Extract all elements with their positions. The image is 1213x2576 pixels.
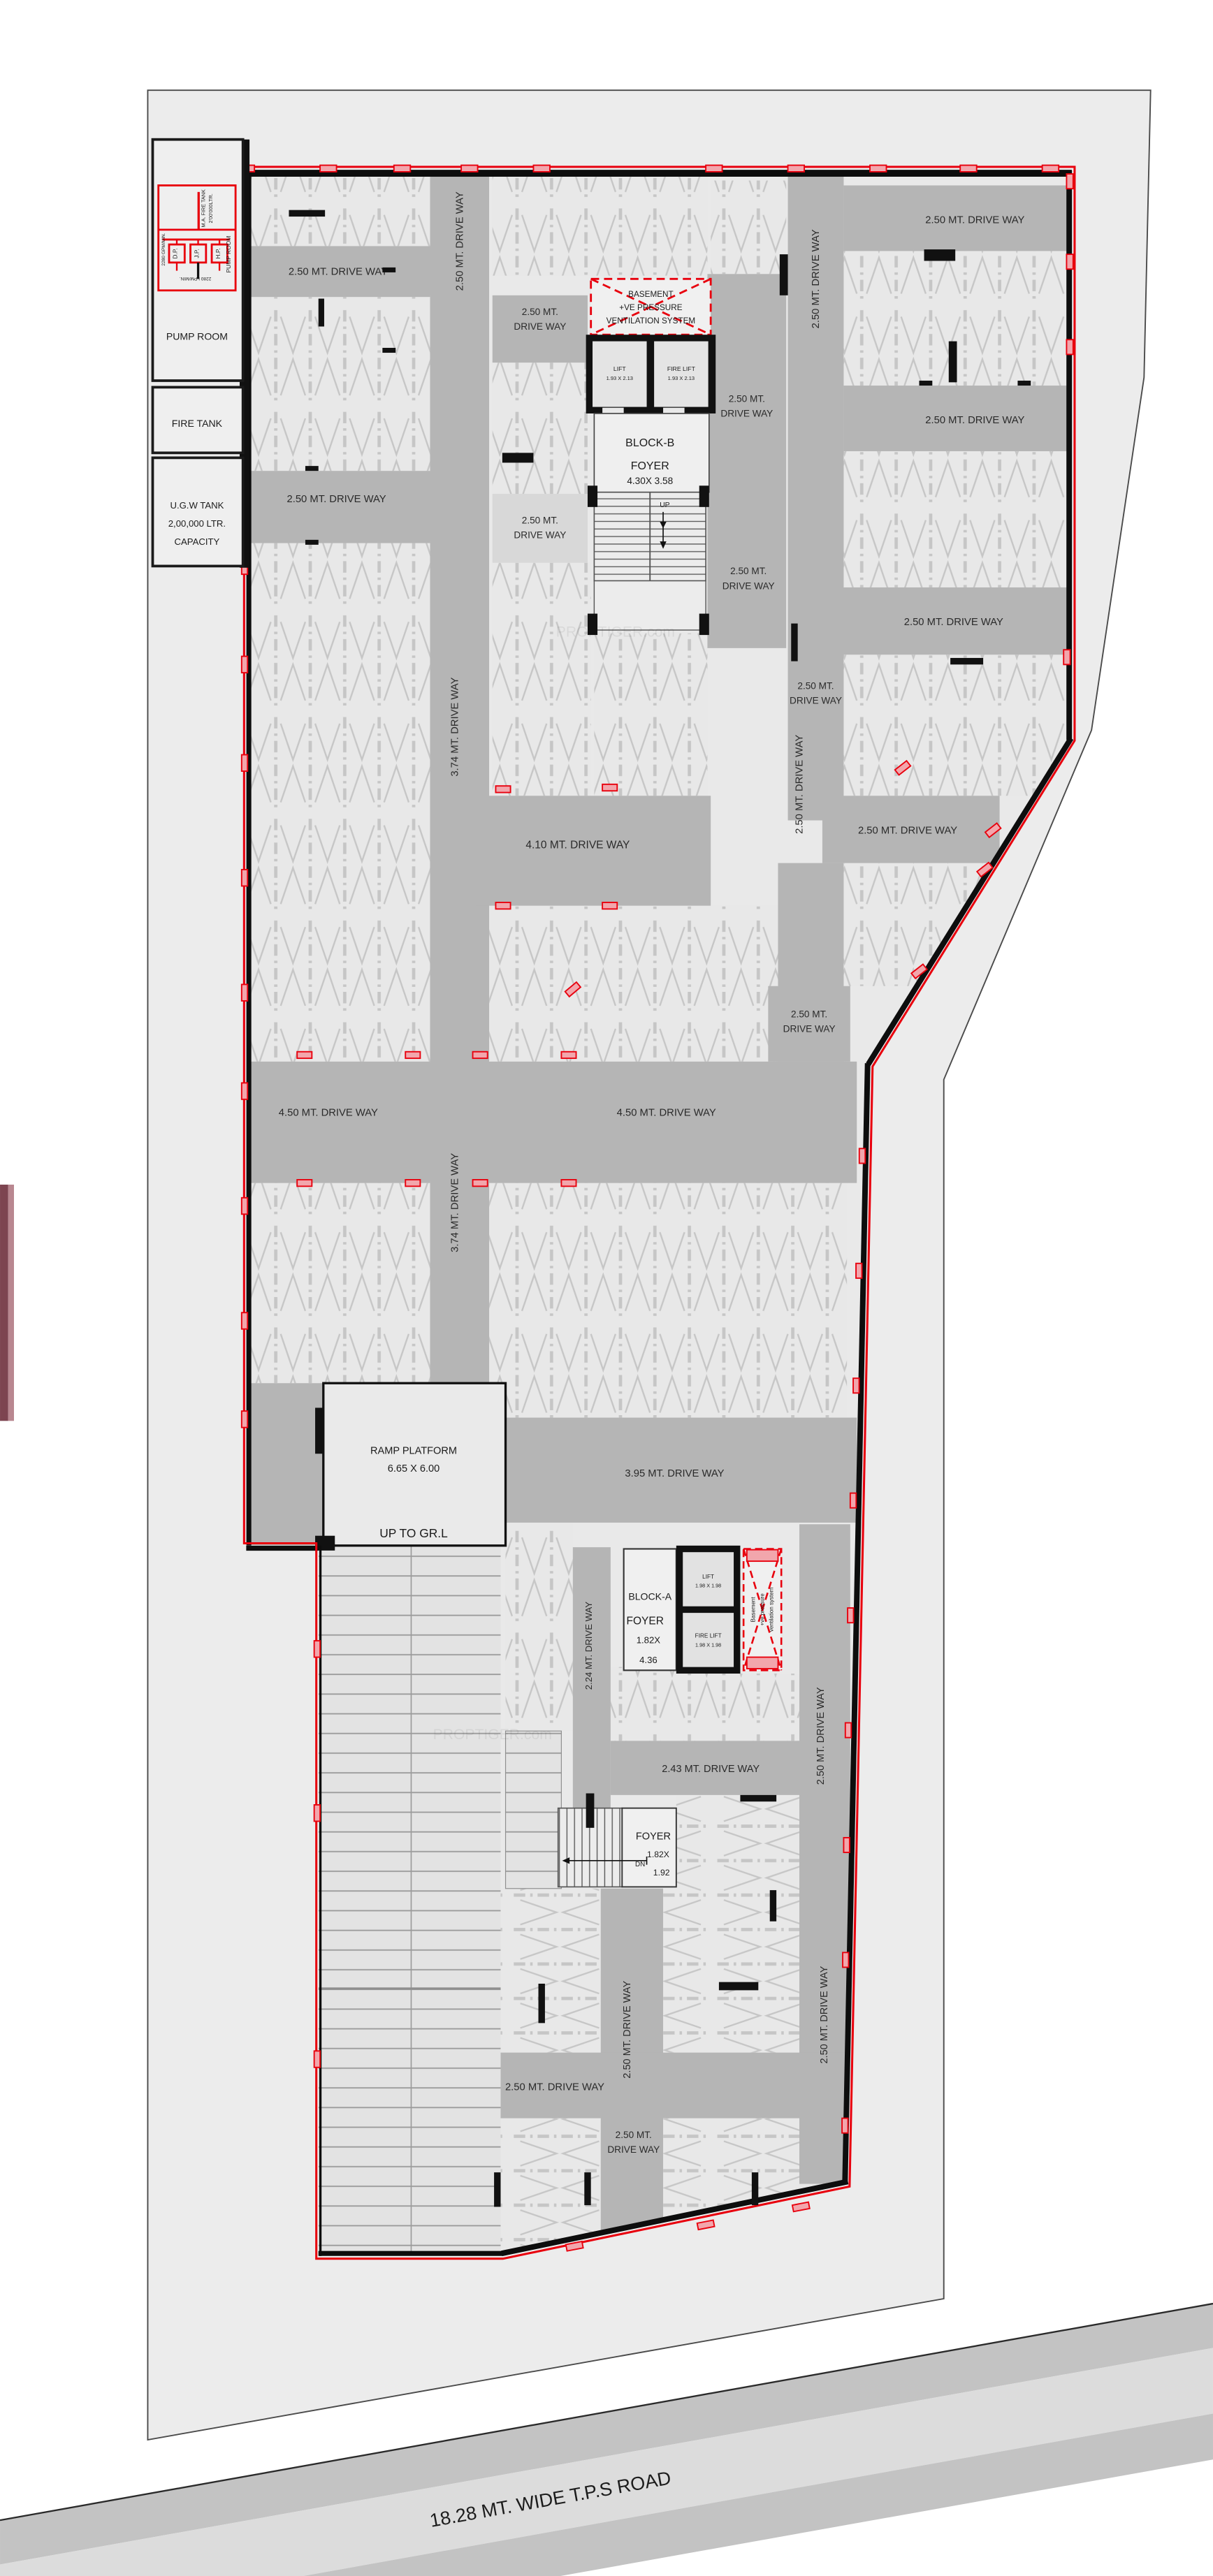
ramp-platform-size: 6.65 X 6.00 — [388, 1463, 440, 1474]
block-b-foyer: BLOCK-B FOYER 4.30X 3.58 — [594, 414, 709, 492]
driveway-label: DRIVE WAY — [720, 409, 773, 419]
driveway-label: 2.50 MT. DRIVE WAY — [454, 191, 465, 291]
down-label: DN — [635, 1861, 645, 1868]
lift-b-label: LIFT — [613, 365, 627, 372]
flow-rate-label: 2280 GPM/MIN. — [161, 233, 166, 265]
ugw-tank-label: U.G.W TANK — [170, 500, 224, 511]
block-b-stairs: UP — [588, 485, 709, 635]
driveway-label: DRIVE WAY — [783, 1024, 836, 1034]
driveway-label: 3.95 MT. DRIVE WAY — [625, 1468, 724, 1479]
driveway-label: 2.50 MT. DRIVE WAY — [925, 214, 1024, 226]
ventilation-label: VENTILATION SYSTEM — [606, 316, 696, 325]
driveway-label: 2.50 MT. DRIVE WAY — [811, 229, 822, 328]
block-b-core: BASEMENT +VE PRESSURE VENTILATION SYSTEM… — [586, 279, 716, 635]
watermark-text: PROPTIGER.com — [433, 1727, 552, 1743]
driveway-label: 2.50 MT. — [616, 2130, 652, 2140]
pump-room-label: PUMP ROOM — [166, 330, 228, 342]
driveway-label: 2.24 MT. DRIVE WAY — [583, 1602, 594, 1690]
pump-dp-label: D.P. — [172, 248, 179, 258]
lift-b-room — [593, 342, 647, 407]
fire-lift-a-room — [683, 1613, 734, 1667]
lower-foyer-size: 1.92 — [653, 1868, 670, 1878]
driveway-label: DRIVE WAY — [790, 696, 842, 706]
driveway-label: 2.50 MT. — [730, 566, 767, 576]
driveway-label: 2.50 MT. DRIVE WAY — [794, 735, 806, 834]
driveway-label: 4.50 MT. DRIVE WAY — [617, 1107, 716, 1118]
watermark-text: PROPTIGER.com — [556, 624, 675, 640]
schematic-tank-label: M.A. FIRE TANK — [201, 189, 207, 227]
driveway-label: 2.43 MT. DRIVE WAY — [662, 1764, 760, 1775]
ugw-tank-label: 2,00,000 LTR. — [168, 518, 226, 529]
driveway-label: DRIVE WAY — [722, 580, 775, 591]
driveway-label: 2.50 MT. — [797, 681, 834, 691]
fire-lift-b-label: FIRE LIFT — [667, 365, 696, 372]
ventilation-a-label: ventilation system — [768, 1587, 774, 1632]
basement-floor-plan-page: 18.28 MT. WIDE T.P.S ROAD — [0, 0, 1213, 2576]
left-page-edge-strip — [0, 1185, 14, 1421]
driveway-label: DRIVE WAY — [514, 529, 566, 540]
lower-foyer-size: 1.82X — [647, 1850, 669, 1859]
driveway-label: 2.50 MT. DRIVE WAY — [819, 1966, 830, 2063]
driveway-label: 3.74 MT. DRIVE WAY — [449, 1153, 460, 1252]
ventilation-label: +VE PRESSURE — [619, 303, 682, 312]
driveway-label: DRIVE WAY — [514, 321, 566, 332]
ramp-up-label: UP TO GR.L — [379, 1526, 448, 1540]
driveway-label: DRIVE WAY — [607, 2144, 660, 2155]
driveway-label: 2.50 MT. DRIVE WAY — [925, 415, 1024, 426]
driveway-label: 2.50 MT. DRIVE WAY — [505, 2082, 604, 2093]
block-a-foyer-size: 1.82X — [637, 1635, 661, 1646]
fire-lift-b-room — [654, 342, 709, 407]
stairs-up-label: UP — [660, 502, 669, 509]
lift-a-size: 1.98 X 1.98 — [695, 1583, 721, 1589]
lower-foyer-label: FOYER — [636, 1831, 671, 1842]
lift-a-label: LIFT — [702, 1574, 714, 1580]
block-a-name: BLOCK-A — [628, 1590, 671, 1602]
schematic-room-label: PUMP ROOM — [225, 236, 232, 273]
driveway-label: 2.50 MT. DRIVE WAY — [904, 617, 1003, 628]
fire-lift-a-label: FIRE LIFT — [695, 1632, 722, 1639]
driveway-label: 4.50 MT. DRIVE WAY — [279, 1107, 378, 1118]
block-a-ventilation-box: Basement +ve pressure ventilation system — [743, 1549, 781, 1670]
driveway-label: 2.50 MT. — [791, 1009, 827, 1019]
driveway-label: 2.50 MT. DRIVE WAY — [289, 266, 388, 277]
ventilation-a-label: +ve pressure — [760, 1593, 766, 1626]
ventilation-label: BASEMENT — [628, 290, 674, 299]
block-b-foyer-size: 4.30X 3.58 — [627, 476, 673, 486]
block-b-ventilation-box: BASEMENT +VE PRESSURE VENTILATION SYSTEM — [591, 279, 711, 335]
block-a-foyer-label: FOYER — [626, 1616, 663, 1627]
fire-lift-b-size: 1.93 X 2.13 — [668, 375, 695, 381]
block-a-foyer — [624, 1549, 676, 1670]
ugw-tank-label: CAPACITY — [175, 536, 220, 547]
schematic-tank-label: 2'00'000LTR. — [208, 193, 214, 223]
ramp-platform: RAMP PLATFORM 6.65 X 6.00 UP TO GR.L — [315, 1383, 505, 1551]
fire-lift-a-size: 1.98 X 1.98 — [695, 1641, 721, 1648]
driveway-label: 4.10 MT. DRIVE WAY — [525, 839, 630, 851]
driveway-label: 2.50 MT. DRIVE WAY — [622, 1981, 633, 2079]
pump-jp-label: J.P. — [193, 249, 200, 258]
lift-b-size: 1.93 X 2.13 — [606, 375, 633, 381]
block-a-foyer-size: 4.36 — [639, 1655, 658, 1665]
lower-ramp-slope — [506, 1731, 562, 1889]
pump-hp-label: H.P. — [215, 248, 221, 258]
ugw-tank-box — [152, 458, 242, 566]
driveway-label: 3.74 MT. DRIVE WAY — [449, 677, 460, 776]
block-b-foyer-label: FOYER — [631, 460, 669, 472]
ramp-platform-label: RAMP PLATFORM — [370, 1445, 457, 1456]
block-a-core: BLOCK-A FOYER 1.82X 4.36 LIFT 1.98 X 1.9… — [624, 1546, 782, 1674]
driveway-label: 2.50 MT. DRIVE WAY — [287, 494, 386, 505]
ventilation-a-label: Basement — [750, 1597, 757, 1623]
driveway-label: 2.50 MT. DRIVE WAY — [858, 825, 957, 836]
fire-tank-label: FIRE TANK — [172, 418, 223, 429]
driveway-label: 2.50 MT. — [729, 394, 765, 404]
flow-rate-label: 2280 LPM/MIN. — [180, 276, 212, 281]
utility-column: PUMP ROOM FIRE TANK U.G.W TANK 2,00,000 … — [152, 140, 249, 568]
driveway-label: 2.50 MT. — [522, 307, 558, 317]
driveway-label: 2.50 MT. DRIVE WAY — [815, 1687, 827, 1785]
floor-plan-svg: 18.28 MT. WIDE T.P.S ROAD — [0, 0, 1213, 2576]
driveway-label: 2.50 MT. — [522, 515, 558, 525]
block-b-name: BLOCK-B — [625, 437, 674, 449]
